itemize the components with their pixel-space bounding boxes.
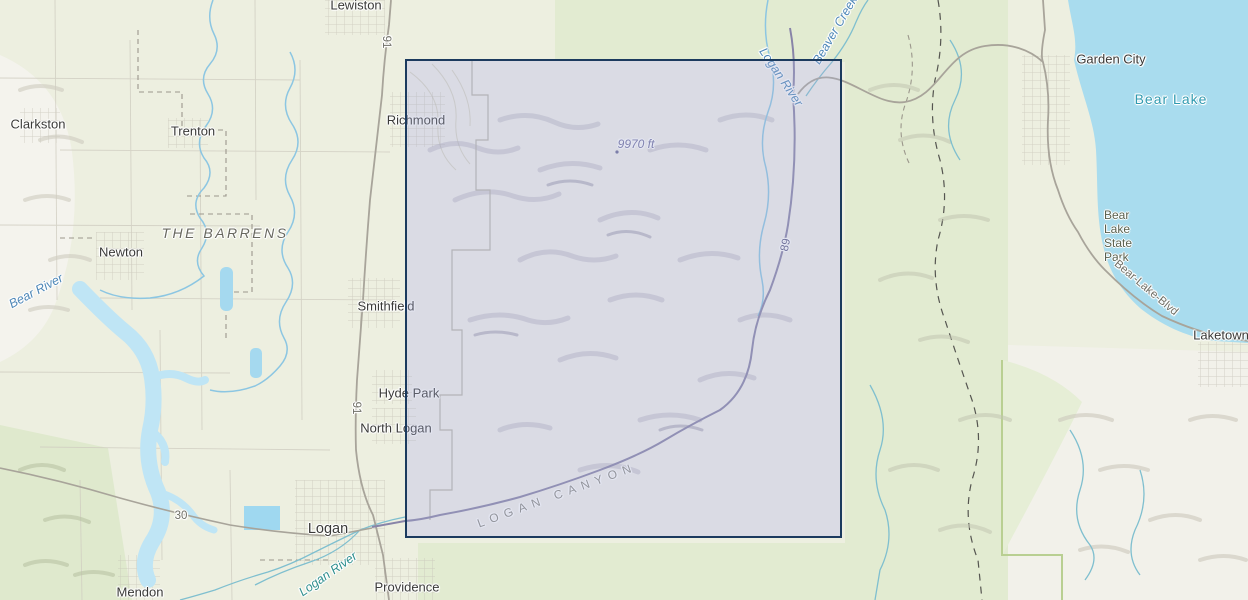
town-label-trenton: Trenton [171,124,215,139]
town-label-lewiston: Lewiston [330,0,381,13]
area-label-bear-lake-state-park: Bear Lake State Park [1104,208,1132,264]
town-label-clarkston: Clarkston [11,117,66,132]
road-label-us91-north: 91 [380,36,392,49]
area-label-the-barrens: THE BARRENS [161,225,288,241]
state-park-line: State [1104,236,1132,250]
lake-label-bear-lake: Bear Lake [1135,91,1208,107]
map-canvas[interactable]: Lewiston Clarkston Trenton Richmond Newt… [0,0,1248,600]
road-label-us91-south: 91 [350,402,362,415]
state-park-line: Lake [1104,222,1132,236]
town-label-mendon: Mendon [117,585,164,600]
town-label-logan: Logan [308,521,348,537]
town-label-providence: Providence [374,580,439,595]
town-label-garden-city: Garden City [1076,52,1145,67]
road-label-sr30: 30 [175,510,188,522]
map-selection-rectangle[interactable] [405,59,842,538]
town-label-newton: Newton [99,245,143,260]
state-park-line: Bear [1104,208,1132,222]
town-label-laketown: Laketown [1193,328,1248,343]
